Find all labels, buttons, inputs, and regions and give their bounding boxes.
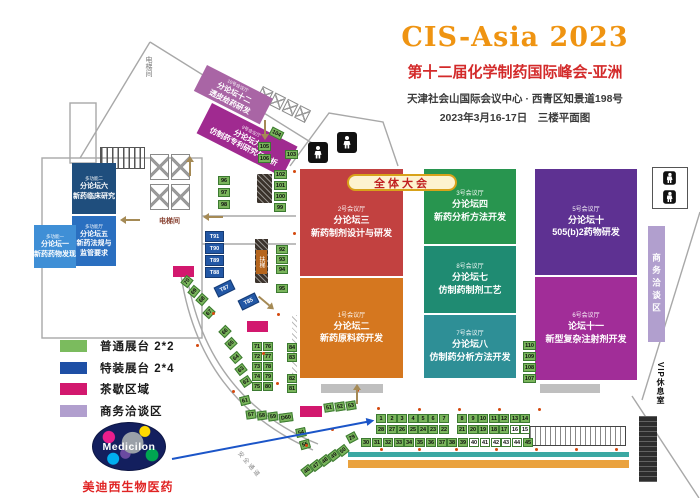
booth-43: 43: [501, 438, 511, 447]
room-hall-7-line2: 仿制药分析方法开发: [424, 351, 516, 363]
booth-4: 4: [408, 414, 418, 423]
pillar-dot: [495, 448, 498, 451]
event-subtitle: 第十二届化学制药国际峰会-亚洲: [393, 61, 637, 82]
pillar-dot: [293, 170, 296, 173]
legend-item-standard-booth: 普通展台 2*2: [60, 340, 174, 352]
booth-71: 71: [252, 342, 262, 351]
booth-10: 10: [478, 414, 488, 423]
booth-13: 13: [510, 414, 520, 423]
booth-29: 29: [345, 431, 358, 444]
pillar-dot: [458, 408, 461, 411]
pillar-dot: [535, 448, 538, 451]
booth-103: 103: [285, 150, 298, 159]
booth-66: 66: [218, 325, 231, 338]
booth-20: 20: [468, 425, 478, 434]
direction-arrow-left: [126, 219, 140, 221]
pillar-dot: [418, 448, 421, 451]
booth-24: 24: [418, 425, 428, 434]
booth-9: 9: [468, 414, 478, 423]
pillar-dot: [293, 232, 296, 235]
room-multi-1-line1: 分论坛一: [34, 240, 76, 249]
pillar-dot: [377, 407, 380, 410]
booth-64: 64: [229, 351, 242, 364]
legend-item-business-area: 商务洽谈区: [60, 405, 174, 417]
business-area-strip: 商务洽谈区: [648, 226, 665, 342]
booth-59: 59: [267, 411, 278, 421]
booth-68: 68: [195, 293, 208, 306]
booth-6: 6: [428, 414, 438, 423]
legend-label: 普通展台 2*2: [100, 338, 174, 354]
booth-T90: T90: [205, 243, 224, 254]
event-title: CIS-Asia 2023: [393, 22, 637, 53]
room-multi-2-line0: 多功能二: [72, 176, 116, 182]
pillar-dot: [277, 313, 280, 316]
booth-31: 31: [372, 438, 382, 447]
booth-35: 35: [415, 438, 425, 447]
legend-label: 商务洽谈区: [100, 403, 163, 419]
tea-break-area-1: [173, 266, 194, 277]
room-hall-5-line0: 5号会议厅: [535, 206, 637, 214]
tea-break-area-2: [247, 321, 268, 332]
booth-28: 28: [376, 425, 386, 434]
booth-41: 41: [480, 438, 490, 447]
booth-D60: D60: [278, 412, 293, 423]
booth-106: 106: [258, 154, 271, 163]
booth-19: 19: [478, 425, 488, 434]
room-hall-7: 7号会议厅分论坛八仿制药分析方法开发: [424, 315, 516, 378]
pillar-dot: [538, 408, 541, 411]
booth-T85: T85: [238, 292, 260, 310]
booth-17: 17: [499, 425, 509, 434]
page-header: CIS-Asia 2023 第十二届化学制药国际峰会-亚洲 天津社会山国际会议中…: [393, 22, 637, 125]
booth-61: 61: [239, 395, 251, 406]
room-hall-1-line0: 1号会议厅: [300, 312, 403, 320]
pillar-dot: [212, 312, 215, 315]
booth-11: 11: [489, 414, 499, 423]
booth-7: 7: [439, 414, 449, 423]
booth-44: 44: [512, 438, 522, 447]
booth-T91: T91: [205, 231, 224, 242]
booth-52: 52: [334, 401, 345, 412]
booth-96: 96: [218, 176, 230, 185]
room-multi-5-line1: 分论坛五: [72, 230, 116, 239]
room-hall-6-line2: 新型复杂注射剂开发: [535, 333, 637, 345]
room-multi-1-line2: 新药药物发现: [34, 250, 76, 259]
room-hall-8-line1: 分论坛七: [424, 271, 516, 283]
booth-32: 32: [383, 438, 393, 447]
medicilon-logo: Medicilon: [92, 422, 166, 471]
escalator-label: 扶梯: [256, 250, 267, 274]
booth-18: 18: [489, 425, 499, 434]
room-hall-2-line0: 2号会议厅: [300, 206, 403, 214]
booth-65: 65: [224, 337, 237, 350]
booth-109: 109: [523, 352, 536, 361]
room-hall-6-line0: 6号会议厅: [535, 312, 637, 320]
booth-T88: T88: [205, 267, 224, 278]
room-hall-6: 6号会议厅论坛十一新型复杂注射剂开发: [535, 277, 637, 380]
room-hall-2-line2: 新药制剂设计与研发: [300, 227, 403, 239]
direction-arrow-left: [209, 216, 223, 218]
legend-swatch-purple: [60, 405, 87, 417]
room-multi-5: 多功能厅分论坛五新药法规与监管要求: [72, 216, 116, 266]
booth-39: 39: [458, 438, 468, 447]
direction-arrow-down: [264, 120, 266, 134]
event-date: 2023年3月16-17日 三楼平面图: [393, 110, 637, 125]
room-multi-2-line1: 分论坛六: [72, 182, 116, 191]
legend-label: 茶歇区域: [100, 381, 150, 397]
venue-address: 天津社会山国际会议中心 · 西青区知景道198号: [393, 91, 637, 106]
booth-97: 97: [218, 188, 230, 197]
booth-33: 33: [394, 438, 404, 447]
legend-item-tea-break: 茶歇区域: [60, 383, 174, 395]
booth-79: 79: [263, 372, 273, 381]
booth-82: 82: [287, 374, 297, 383]
room-hall-3-line1: 分论坛四: [424, 198, 516, 210]
booth-102: 102: [274, 170, 287, 179]
booth-26: 26: [397, 425, 407, 434]
sponsor-company-name: 美迪西生物医药: [62, 478, 194, 495]
booth-76: 76: [263, 342, 273, 351]
booth-110: 110: [523, 341, 536, 350]
legend-swatch-magenta: [60, 383, 87, 395]
room-hall-6-line1: 论坛十一: [535, 320, 637, 332]
tea-break-area-3: [300, 406, 322, 417]
direction-arrow-up: [189, 162, 191, 176]
pillar-dot: [575, 448, 578, 451]
booth-2: 2: [387, 414, 397, 423]
booth-16: 16: [510, 425, 520, 434]
booth-92: 92: [276, 245, 288, 254]
booth-83: 83: [287, 353, 297, 362]
booth-108: 108: [523, 363, 536, 372]
booth-62: 62: [239, 375, 252, 388]
legend-swatch-green: [60, 340, 87, 352]
wall-bar: [540, 384, 600, 393]
floor-plan-canvas: 扶梯 商务洽谈区 VIP休息室 电梯间 电梯间 安全通道 2号会议厅分论坛三新药…: [0, 0, 700, 498]
room-hall-8: 8号会议厅分论坛七仿制药制剂工艺: [424, 246, 516, 313]
direction-arrow-up: [356, 390, 358, 404]
room-multi-5-line3: 监管要求: [72, 249, 116, 258]
booth-107: 107: [523, 374, 536, 383]
booth-5: 5: [418, 414, 428, 423]
booth-53: 53: [345, 400, 356, 411]
elevator-hall-label: 电梯间: [159, 216, 180, 226]
room-hall-5-line1: 分论坛十: [535, 214, 637, 226]
booth-95: 95: [276, 284, 288, 293]
booth-100: 100: [274, 192, 287, 201]
elevator-hall-side-label: 电梯间: [143, 56, 153, 77]
pillar-dot: [232, 390, 235, 393]
legend-swatch-blue: [60, 362, 87, 374]
room-hall-5: 5号会议厅分论坛十505(b)2药物研发: [535, 169, 637, 275]
booth-36: 36: [426, 438, 436, 447]
room-hall-5-line2: 505(b)2药物研发: [535, 226, 637, 238]
medicilon-logo-text: Medicilon: [103, 441, 156, 453]
booth-30: 30: [361, 438, 371, 447]
booth-15: 15: [520, 425, 530, 434]
booth-25: 25: [408, 425, 418, 434]
booth-84: 84: [287, 343, 297, 352]
wall-bar: [321, 384, 383, 393]
booth-98: 98: [218, 200, 230, 209]
room-hall-3-line0: 3号会议厅: [424, 190, 516, 198]
booth-14: 14: [520, 414, 530, 423]
booth-8: 8: [457, 414, 467, 423]
booth-3: 3: [397, 414, 407, 423]
legend-label: 特装展台 2*4: [100, 360, 174, 376]
booth-27: 27: [387, 425, 397, 434]
room-hall-3-line2: 新药分析方法开发: [424, 211, 516, 223]
pillar-dot: [615, 448, 618, 451]
booth-81: 81: [287, 384, 297, 393]
booth-73: 73: [252, 362, 262, 371]
booth-40: 40: [469, 438, 479, 447]
booth-42: 42: [491, 438, 501, 447]
plenary-session-banner: 全体大会: [347, 174, 457, 191]
booth-T87: T87: [214, 279, 236, 297]
pillar-dot: [418, 408, 421, 411]
legend: 普通展台 2*2 特装展台 2*4 茶歇区域 商务洽谈区: [60, 340, 174, 426]
room-multi-5-line2: 新药法规与: [72, 239, 116, 248]
room-hall-2-line1: 分论坛三: [300, 214, 403, 226]
booth-1: 1: [376, 414, 386, 423]
room-multi-1: 多功能一分论坛一新药药物发现: [34, 225, 76, 268]
booth-21: 21: [457, 425, 467, 434]
booth-93: 93: [276, 255, 288, 264]
pillar-dot: [262, 352, 265, 355]
booth-T89: T89: [205, 255, 224, 266]
booth-51: 51: [323, 402, 334, 413]
room-hall-7-line1: 分论坛八: [424, 338, 516, 350]
booth-80: 80: [263, 382, 273, 391]
room-hall-1-line1: 分论坛二: [300, 320, 403, 332]
legend-item-special-booth: 特装展台 2*4: [60, 362, 174, 374]
booth-58: 58: [256, 410, 267, 420]
booth-37: 37: [437, 438, 447, 447]
booth-45: 45: [523, 438, 533, 447]
booth-74: 74: [252, 372, 262, 381]
booth-23: 23: [428, 425, 438, 434]
booth-94: 94: [276, 265, 288, 274]
booth-99: 99: [274, 203, 286, 212]
pillar-dot: [498, 408, 501, 411]
room-multi-1-line0: 多功能一: [34, 234, 76, 240]
room-multi-2-line2: 新药临床研究: [72, 192, 116, 201]
vip-lounge-label: VIP休息室: [655, 362, 666, 405]
pillar-dot: [276, 382, 279, 385]
room-multi-5-line0: 多功能厅: [72, 224, 116, 230]
booth-63: 63: [234, 363, 247, 376]
room-hall-1: 1号会议厅分论坛二新药原料药开发: [300, 278, 403, 378]
booth-105: 105: [258, 142, 271, 151]
room-multi-2: 多功能二分论坛六新药临床研究: [72, 163, 116, 214]
booth-101: 101: [274, 181, 287, 190]
booth-22: 22: [439, 425, 449, 434]
booth-38: 38: [447, 438, 457, 447]
booth-57: 57: [245, 409, 256, 419]
pillar-dot: [455, 448, 458, 451]
booth-12: 12: [499, 414, 509, 423]
pillar-dot: [196, 344, 199, 347]
booth-72: 72: [252, 352, 262, 361]
booth-75: 75: [252, 382, 262, 391]
booth-78: 78: [263, 362, 273, 371]
room-hall-8-line2: 仿制药制剂工艺: [424, 284, 516, 296]
pillar-dot: [380, 448, 383, 451]
room-hall-7-line0: 7号会议厅: [424, 330, 516, 338]
room-hall-8-line0: 8号会议厅: [424, 263, 516, 271]
booth-34: 34: [404, 438, 414, 447]
room-hall-1-line2: 新药原料药开发: [300, 332, 403, 344]
pillar-dot: [305, 444, 308, 447]
